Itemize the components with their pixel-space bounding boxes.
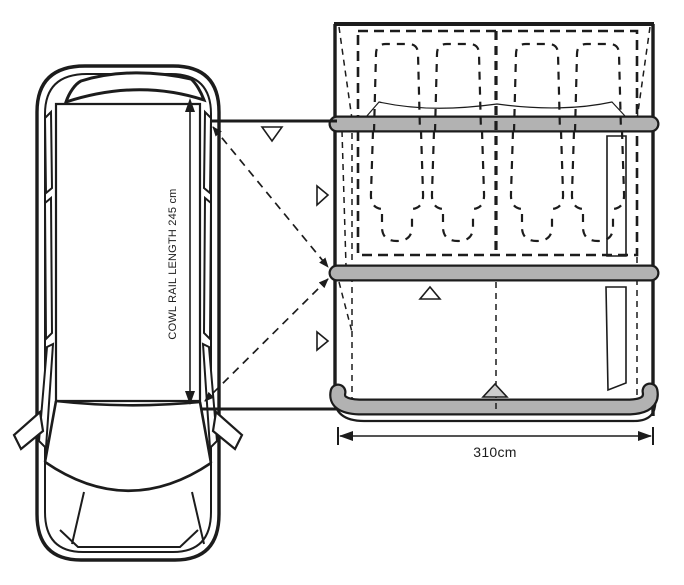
van-hood-crease-right: [192, 492, 204, 544]
sleeping-bag-3-body: [511, 131, 563, 209]
awning-width-dimension: 310cm: [338, 427, 653, 460]
sleeping-bag-4: [572, 44, 624, 241]
diagram-art: COWL RAIL LENGTH 245 cm 310cm: [14, 24, 655, 560]
connection-tunnel: [201, 121, 337, 409]
side-door-panel-front: [606, 287, 626, 390]
van-window-strip-right-rear: [204, 112, 211, 193]
sleeping-bag-2: [432, 44, 484, 241]
awning-width-arrow-right: [638, 431, 652, 441]
marker-triangle-right-upper: [317, 186, 328, 205]
guide-arrow-lower: [205, 279, 328, 401]
sleeping-bag-3: [511, 44, 563, 241]
marker-triangle-right-lower: [317, 332, 328, 350]
awning-wall-slope-left-top: [339, 27, 352, 119]
awning-wall-slope-left-front: [339, 282, 352, 332]
awning-width-label: 310cm: [473, 444, 517, 460]
sleeping-bag-2-foot: [443, 214, 473, 241]
sleeping-bag-1-foot: [382, 214, 412, 241]
marker-triangle-down: [262, 127, 282, 141]
awning-width-arrow-left: [339, 431, 353, 441]
sleeping-bag-3-foot: [522, 214, 552, 241]
campervan: [14, 66, 242, 560]
van-front-bumper-line: [60, 530, 198, 547]
van-hood-crease-left: [72, 492, 84, 544]
van-body-outline: [37, 66, 219, 560]
awning-floorplan-diagram: COWL RAIL LENGTH 245 cm 310cm: [0, 0, 684, 585]
awning-wall-slope-left-mid: [342, 131, 346, 266]
van-rear-window: [66, 73, 204, 102]
marker-triangle-up-open: [420, 287, 440, 299]
awning: [262, 24, 655, 421]
van-window-strip-left-mid: [45, 198, 52, 339]
awning-floorplan-canvas: COWL RAIL LENGTH 245 cm 310cm: [0, 0, 684, 585]
sleeping-bag-4-body: [572, 131, 624, 209]
van-window-strip-right-mid: [204, 198, 211, 339]
cowl-rail-dimension: COWL RAIL LENGTH 245 cm: [167, 98, 195, 405]
sleeping-bag-1: [371, 44, 423, 241]
sleeping-bag-4-foot: [583, 214, 613, 241]
guide-arrow-upper: [213, 127, 328, 267]
van-windshield: [45, 401, 211, 491]
sleeping-bag-2-body: [432, 131, 484, 209]
marker-triangle-up-filled: [483, 384, 507, 397]
awning-wall-slope-right-top: [637, 27, 650, 119]
van-body-inner-line: [45, 74, 211, 552]
sleeping-bag-1-body: [371, 131, 423, 209]
cowl-rail-length-label: COWL RAIL LENGTH 245 cm: [167, 188, 179, 339]
van-window-strip-left-rear: [45, 112, 52, 193]
